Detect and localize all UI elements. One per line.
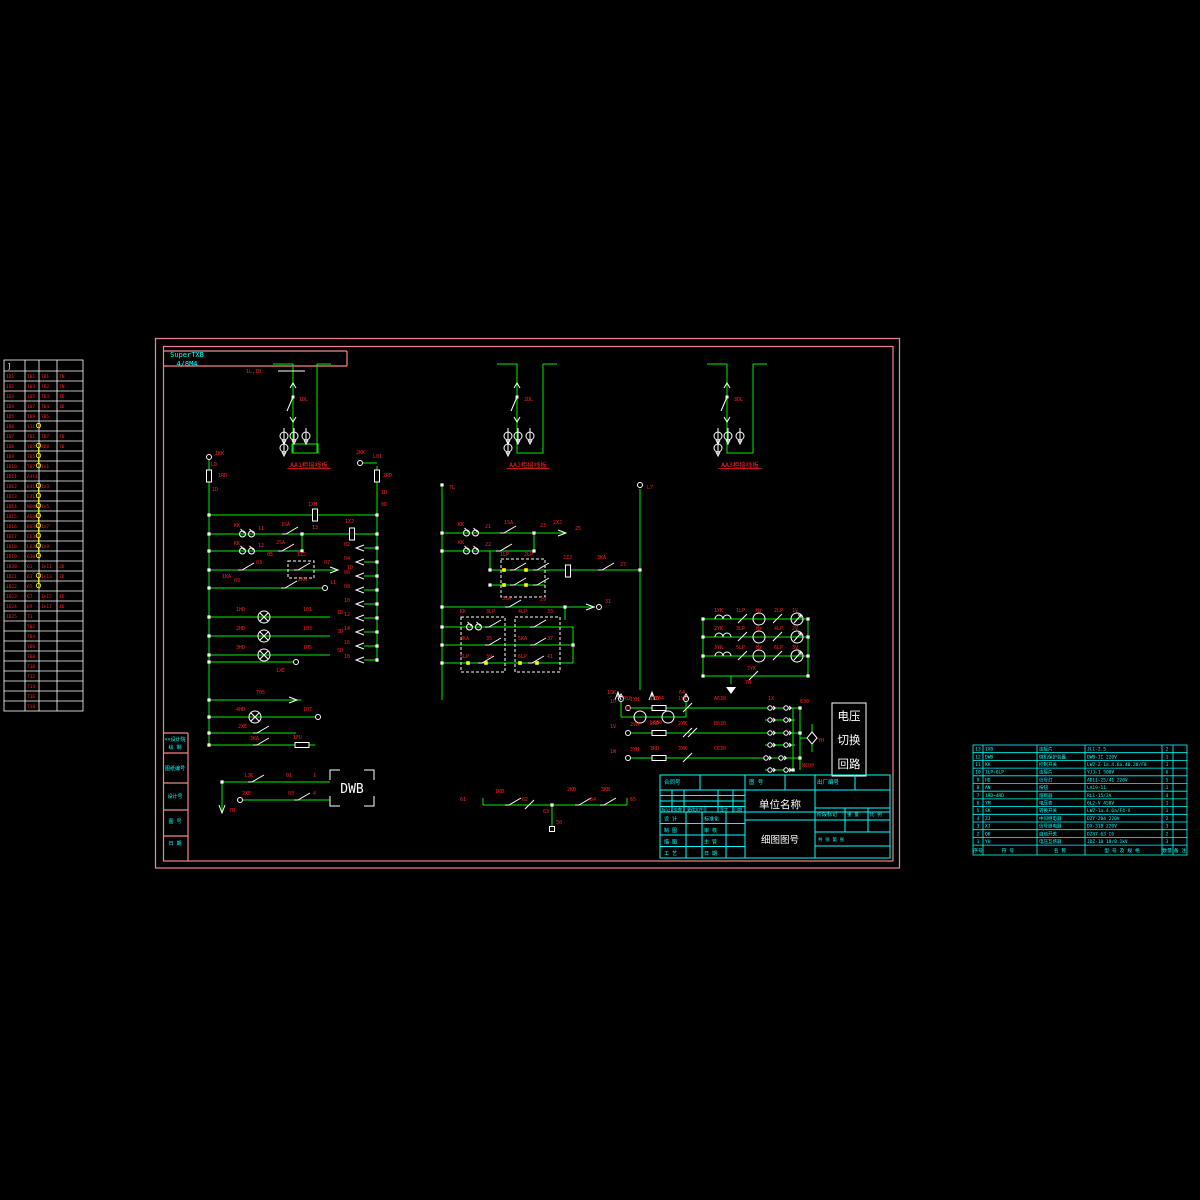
bom-cell: SK (985, 808, 991, 814)
svg-text:标准化: 标准化 (704, 816, 719, 823)
schematic-label: KK (460, 609, 466, 615)
schematic-label: 39 (486, 654, 492, 660)
schematic-label: 50 (556, 820, 562, 826)
drawing-frame (156, 339, 900, 869)
schematic-label: 2V (792, 626, 798, 632)
schematic-label: 1LP (736, 608, 745, 614)
schematic-label: 7N (745, 680, 751, 686)
bom-cell: JDZ-10 10/0.1kV (1087, 839, 1128, 845)
schematic-label: 5LP (736, 645, 745, 651)
terminal-cell: 101 (27, 374, 35, 380)
schematic-label: 65 (630, 797, 636, 803)
terminal-cell: 1D2 (6, 384, 14, 390)
schematic-label: 25 (575, 526, 581, 532)
schematic-label: 5D (337, 648, 343, 654)
schematic-label: 16 (344, 640, 350, 646)
schematic-label: 103 (303, 626, 312, 632)
schematic-label: 1V (610, 724, 616, 730)
schematic-label: 7N (229, 808, 235, 814)
schematic-label: 1ZJ (297, 552, 306, 558)
svg-text:更改文件号: 更改文件号 (687, 806, 707, 812)
bom-cell: DZ47-63 C6 (1087, 831, 1114, 837)
schematic-label: 11 (258, 526, 264, 532)
schematic-label: 630 (800, 699, 809, 705)
schematic-label: 09 (234, 578, 240, 584)
terminal-cell: 1D16 (6, 524, 17, 530)
schematic-label: 3YK (714, 645, 723, 651)
schematic-label: 63 (625, 706, 631, 712)
bom-cell: 3 (1166, 824, 1169, 830)
terminal-cell: 7D8 (41, 444, 49, 450)
bom-cell: 1 (977, 839, 980, 845)
schematic-label: 64 (679, 690, 685, 696)
schematic-label: N600 (802, 763, 814, 769)
terminal-cell: 707 (27, 464, 35, 470)
schematic-label: Hz (756, 626, 762, 632)
terminal-cell: 718 (27, 704, 35, 710)
terminal-table-header: ] (7, 363, 11, 371)
schematic-label: 12 (344, 612, 350, 618)
voltage-switch-label: 电压 切换 回路 (838, 709, 861, 771)
schematic-label: 1KK (215, 451, 224, 457)
schematic-label: 图纸编号 (165, 765, 185, 772)
schematic-label: 设计号 (167, 793, 182, 800)
schematic-label: 04 (344, 556, 350, 562)
terminal-cell: 67 (27, 594, 33, 600)
schematic-label: KK (458, 540, 464, 546)
schematic-symbols (207, 371, 867, 832)
factory-no-label: 出厂编号 (817, 778, 840, 786)
schematic-label: B630 (714, 721, 726, 727)
bom-cell: LW2-Z-1a.4.6a.40.20/F8 (1087, 762, 1147, 768)
schematic-label: 2SA (276, 540, 285, 546)
bom-cell: 6L2-V 450V (1087, 801, 1114, 807)
terminal-cell: 1D18 (6, 544, 17, 550)
cad-canvas: DWB 电压 切换 回路 SuperTXB 4/8M4 合同号 图 号 出厂编号… (0, 0, 1200, 1200)
schematic-label: 64 (590, 797, 596, 803)
terminal-cell: 716 (27, 694, 35, 700)
schematic-label: ××设计院 (164, 736, 185, 743)
terminal-cell: 1n1 (41, 464, 49, 470)
bom-header-cell: 序号 (973, 847, 983, 854)
bom-cell: JL1-2.5 (1087, 747, 1106, 753)
schematic-label: 02 (344, 542, 350, 548)
bom-cell: 1LP~6LP (985, 770, 1004, 776)
schematic-label: 62 (522, 797, 528, 803)
terminal-cell: 7N (59, 374, 65, 380)
bom-header-cell: 名 称 (1054, 847, 1067, 854)
bom-cell: 转换开关 (1039, 807, 1057, 814)
terminal-cell: 70 (59, 444, 65, 450)
svg-text:回路: 回路 (838, 757, 861, 771)
bom-cell: 6 (1166, 770, 1169, 776)
schematic-label: 绘 制 (168, 744, 181, 751)
terminal-cell: 103 (27, 384, 35, 390)
bom-cell: ZJ (985, 816, 991, 822)
schematic-label: 1DL (299, 397, 308, 403)
scale-label: 比 例 (870, 811, 882, 818)
terminal-cell: 1D20 (6, 564, 17, 570)
schematic-label: 7L (449, 485, 455, 491)
schematic-label: L7 (647, 485, 653, 491)
schematic-label: 2XE (242, 791, 251, 797)
schematic-label: 3KB (601, 787, 610, 793)
schematic-label: 3YK (678, 746, 687, 752)
bom-cell: 2 (977, 831, 980, 837)
schematic-label: 4 (313, 791, 316, 797)
bom-cell: 1RD~4RD (985, 793, 1004, 799)
schematic-label: KK (234, 523, 240, 529)
schematic-label: 2XE (238, 724, 247, 730)
terminal-cell: 1D12 (6, 484, 17, 490)
schematic-label: 1SA (281, 522, 290, 528)
schematic-label: 18 (344, 654, 350, 660)
schematic-label: 3LP (736, 626, 745, 632)
watermark-line2: 4/8M4 (176, 360, 197, 368)
bom-cell: 9 (977, 777, 980, 783)
schematic-label: 2HD (236, 626, 245, 632)
terminal-cell: 105 (27, 394, 35, 400)
terminal-cell: 630 (27, 554, 35, 560)
svg-text:电压: 电压 (838, 709, 861, 723)
svg-text:设 计: 设 计 (664, 816, 677, 823)
schematic-label: 3DL (734, 397, 743, 403)
terminal-cell: 4D (59, 604, 65, 610)
doc-no: 细图图号 (761, 834, 799, 846)
schematic-label: 05 (267, 552, 273, 558)
schematic-label: 1XM (308, 502, 317, 508)
schematic-label: 08 (344, 584, 350, 590)
schematic-label: 1RD (650, 696, 659, 702)
bom-cell: 1 (1166, 762, 1169, 768)
bom-cell: LA19-11 (1087, 785, 1106, 791)
schematic-label: 1LP (500, 552, 509, 558)
terminal-strip-table: ]1D11017D17N1D21037D27N1D31057D31D1D4107… (4, 360, 83, 711)
terminal-cell: 701 (27, 434, 35, 440)
schematic-label: 5KA (518, 636, 527, 642)
bom-cell: 1XB (985, 747, 993, 753)
schematic-label: 21 (485, 524, 491, 530)
terminal-cell: 714 (27, 684, 35, 690)
terminal-cell: 7D3 (41, 394, 49, 400)
svg-text:处数: 处数 (674, 806, 682, 812)
schematic-label: 1D (381, 490, 387, 496)
schematic-label: 1JK (244, 773, 253, 779)
schematic-label: 3SA (502, 596, 511, 602)
schematic-label: 5LP (460, 654, 469, 660)
bom-cell: 微机保护装置 (1039, 753, 1066, 760)
terminal-cell: 1n9 (41, 544, 49, 550)
schematic-label: 2DL (524, 397, 533, 403)
schematic-label: 1YH (630, 697, 639, 703)
terminal-cell: 7N (59, 384, 65, 390)
terminal-cell: 1D8 (6, 444, 14, 450)
schematic-label: 3RD (650, 746, 659, 752)
bom-cell: 3 (1166, 839, 1169, 845)
terminal-cell: 703 (27, 444, 35, 450)
bom-cell: 5 (977, 808, 980, 814)
schematic-label: 3HD (236, 645, 245, 651)
bom-cell: 11 (975, 762, 981, 768)
terminal-cell: 2D (59, 574, 65, 580)
terminal-cell: 704 (27, 634, 35, 640)
bom-cell: 5 (1166, 777, 1169, 783)
bom-cell: 4 (1166, 793, 1169, 799)
terminal-cell: 7D4 (41, 404, 49, 410)
schematic-label: 2RD (383, 473, 392, 479)
bom-cell: 2 (1166, 816, 1169, 822)
svg-text:审 核: 审 核 (704, 827, 717, 834)
contract-no-label: 合同号 (664, 778, 681, 786)
terminal-cell: 1D13 (6, 494, 17, 500)
terminal-cell: 7D1 (41, 374, 49, 380)
terminal-cell: 1D15 (6, 514, 17, 520)
schematic-label: AA3柜接线板 (721, 460, 759, 469)
terminal-cell: 107 (27, 404, 35, 410)
schematic-label: 1SK (607, 690, 616, 696)
schematic-label: 3YH (630, 747, 639, 753)
schematic-label: 1U (610, 699, 616, 705)
schematic-label: 23 (540, 523, 546, 529)
terminal-cell: 1n3 (41, 484, 49, 490)
bom-cell: AN (985, 785, 991, 791)
watermark-line1: SuperTXB (170, 351, 204, 359)
terminal-cell: 1D (59, 394, 65, 400)
schematic-label: YH (818, 738, 824, 744)
terminal-cell: 712 (27, 674, 35, 680)
schematic-label: 37 (547, 636, 553, 642)
terminal-cell: 1D24 (6, 604, 17, 610)
schematic-label: 2YH (630, 722, 639, 728)
terminal-cell: 61 (27, 564, 33, 570)
schematic-label: 3D (337, 629, 343, 635)
terminal-cell: 710 (27, 664, 35, 670)
schematic-label: 2LP (774, 608, 783, 614)
schematic-label: 2KA (298, 577, 307, 583)
bom-cell: 信号灯 (1039, 776, 1053, 783)
schematic-label: 4HD (236, 707, 245, 713)
schematic-label: 07 (324, 560, 330, 566)
bom-cell: KK (985, 762, 991, 768)
bom-cell: 1 (1166, 754, 1169, 760)
schematic-label: 1FU (293, 735, 302, 741)
schematic-label: 1HD (236, 607, 245, 613)
schematic-label: AA2柜接线板 (509, 460, 547, 469)
bom-cell: 2 (1166, 831, 1169, 837)
schematic-label: 10 (344, 598, 350, 604)
schematic-label: KK (458, 522, 464, 528)
schematic-label: 4LP (518, 609, 527, 615)
schematic-label: 12 (258, 543, 264, 549)
terminal-cell: 1D21 (6, 574, 17, 580)
terminal-cell: 7D7 (41, 434, 49, 440)
schematic-label: 105 (303, 645, 312, 651)
schematic-label: 2LP (524, 552, 533, 558)
schematic-label: 1KB (495, 789, 504, 795)
bom-cell: 10 (975, 770, 981, 776)
terminal-cell: 7D2 (41, 384, 49, 390)
terminal-cell: 1D11 (6, 474, 17, 480)
schematic-label: 1SA (504, 520, 513, 526)
schematic-label: 22 (485, 542, 491, 548)
schematic-label: 1XJ (345, 519, 354, 525)
bom-cell: DWB-II 220V (1087, 754, 1117, 760)
schematic-label: 6LP (774, 645, 783, 651)
schematic-label: 1X (768, 696, 774, 702)
schematic-label: 图 号 (168, 819, 181, 825)
terminal-cell: 1n15 (41, 594, 52, 600)
bom-cell: QK (985, 831, 991, 837)
schematic-label: 2YK (678, 721, 687, 727)
terminal-cell: 1n13 (41, 574, 52, 580)
bom-table: 131XB连接片JL1-2.5212DWB微机保护装置DWB-II 220V11… (973, 745, 1187, 855)
bom-header-cell: 符 号 (1002, 847, 1015, 854)
terminal-cell: 1n5 (41, 504, 49, 510)
schematic-label: 2YK (714, 626, 723, 632)
schematic-label: 41 (547, 654, 553, 660)
schematic-label: L630 (650, 720, 662, 726)
terminal-cell: 1D5 (6, 414, 14, 420)
terminal-cell: 1D19 (6, 554, 17, 560)
schematic-label: 29 (540, 597, 546, 603)
svg-text:签字: 签字 (720, 806, 728, 812)
bom-header-cell: 型 号 及 规 格 (1104, 847, 1140, 854)
bom-cell: 7 (977, 793, 980, 799)
schematic-label: 03 (288, 791, 294, 797)
schematic-label: 1XE (276, 668, 285, 674)
schematic-label: 27 (620, 562, 626, 568)
terminal-cell: 706 (27, 644, 35, 650)
svg-text:日 期: 日 期 (704, 851, 717, 857)
terminal-cell: 4D (59, 594, 65, 600)
bom-cell: 信号继电器 (1039, 823, 1062, 830)
schematic-label: 107 (303, 707, 312, 713)
schematic-label: 01 (286, 773, 292, 779)
schematic-label: 4LP (774, 626, 783, 632)
svg-text:切换: 切换 (838, 733, 861, 747)
terminal-cell: 2D (59, 564, 65, 570)
schematic-label: 1 (313, 773, 316, 779)
terminal-cell: 1D1 (6, 374, 14, 380)
terminal-cell: 1D9 (6, 454, 14, 460)
schematic-label: 1YK (714, 608, 723, 614)
schematic-label: Hz (756, 608, 762, 614)
bom-cell: RL1-15/2A (1087, 793, 1112, 799)
bom-cell: 3 (977, 824, 980, 830)
schematic-label: 日 期 (168, 841, 181, 847)
schematic-label: 11 (330, 580, 336, 586)
schematic-label: 3KA (250, 736, 259, 742)
terminal-cell: 71 (27, 614, 33, 620)
terminal-cell: 708 (27, 654, 35, 660)
bom-cell: DZY-204 220V (1087, 816, 1120, 822)
svg-text:描 图: 描 图 (664, 839, 677, 846)
schematic-label: 1YK (678, 696, 687, 702)
terminal-cell: 65 (27, 584, 33, 590)
schematic-label: 0D (381, 502, 387, 508)
terminal-cell: 111 (27, 424, 35, 430)
svg-text:制 图: 制 图 (664, 827, 677, 834)
bom-header-cell: 数量 (1162, 847, 1172, 854)
bom-cell: AD11-25/41 220V (1087, 777, 1128, 783)
svg-text:工 艺: 工 艺 (664, 851, 677, 857)
drawing-no-label: 图 号 (749, 778, 764, 786)
sheet-label: 共 张 第 张 (818, 836, 845, 843)
bom-cell: DX-31B 220V (1087, 824, 1117, 830)
schematic-label: 63 (543, 809, 549, 815)
schematic-label: 4KA (460, 636, 469, 642)
terminal-cell: 702 (27, 624, 35, 630)
schematic-label: 2ZJ (563, 555, 572, 561)
svg-text:主 管: 主 管 (704, 839, 717, 846)
terminal-cell: 1D14 (6, 504, 17, 510)
bom-cell: 控制开关 (1039, 761, 1057, 768)
bom-cell: YJJ-1 500V (1087, 770, 1114, 776)
terminal-cell: A411 (27, 474, 38, 480)
bom-cell: LW2-1a.4.6a/F4-X (1087, 808, 1131, 814)
terminal-cell: 1D4 (6, 404, 14, 410)
terminal-cell: 705 (27, 454, 35, 460)
schematic-label: L0 (211, 462, 217, 468)
schematic-label: 1D (337, 610, 343, 616)
schematic-label: Hz (756, 645, 762, 651)
bom-cell: 8 (977, 785, 980, 791)
svg-text:标记: 标记 (662, 806, 670, 812)
dwb-label: DWB (340, 782, 364, 797)
bom-cell: 1 (1166, 808, 1169, 814)
schematic-label: 1L,1B (246, 369, 261, 375)
terminal-cell: 109 (27, 414, 35, 420)
terminal-cell: 1D6 (6, 424, 14, 430)
terminal-cell: 1n17 (41, 604, 52, 610)
bom-cell: 连接片 (1039, 746, 1053, 753)
terminal-cell: 7D5 (41, 414, 49, 420)
schematic-label: 2KB (567, 787, 576, 793)
schematic-label: 1RD (218, 473, 227, 479)
schematic-label: L01 (373, 454, 382, 460)
terminal-cell: 69 (27, 604, 33, 610)
bom-cell: 13 (975, 747, 981, 753)
schematic-label: 3V (792, 645, 798, 651)
bom-cell: 自动开关 (1039, 830, 1057, 837)
terminal-cell: 1D17 (6, 534, 17, 540)
bom-cell: 4 (977, 816, 980, 822)
schematic-label: 35 (486, 636, 492, 642)
svg-text:日期: 日期 (734, 806, 742, 812)
stage-label: 阶段标记 (817, 811, 837, 818)
weight-label: 重 量 (847, 811, 859, 818)
schematic-label: 1D (212, 487, 218, 493)
bom-cell: 1 (1166, 785, 1169, 791)
schematic-label: 705 (256, 690, 265, 696)
bom-cell: 12 (975, 754, 981, 760)
terminal-cell: 1D (59, 404, 65, 410)
bom-cell: 电压表 (1039, 800, 1053, 807)
schematic-label: 3LP (486, 609, 495, 615)
schematic-label: 06 (344, 570, 350, 576)
bom-cell: HD (985, 777, 991, 783)
schematic-label: 6LP (518, 654, 527, 660)
schematic-label: 14 (344, 626, 350, 632)
bom-cell: 电压互感器 (1039, 838, 1062, 845)
bom-cell: 连接片 (1039, 769, 1053, 776)
terminal-cell: 63 (27, 574, 33, 580)
bom-cell: YH (985, 839, 991, 845)
bom-header-cell: 备 注 (1174, 847, 1187, 854)
terminal-cell: 1n7 (41, 524, 49, 530)
schematic-label: 31 (605, 599, 611, 605)
schematic-label: 3KA (597, 555, 606, 561)
